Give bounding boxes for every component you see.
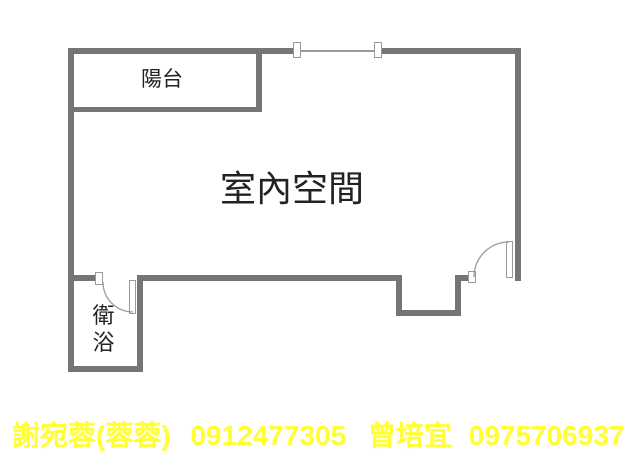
indoor-label: 室內空間 (216, 160, 368, 212)
floorplan-canvas: 陽台 室內空間 衛浴 謝宛蓉(蓉蓉) 0912477305 曾培宜 097570… (0, 0, 640, 461)
agent2-name: 曾培宜 (368, 420, 452, 451)
agent2-phone: 0975706937 (469, 420, 625, 451)
balcony-label: 陽台 (118, 63, 206, 93)
wall-balcony-right (256, 48, 262, 112)
agent1-phone: 0912477305 (190, 420, 346, 451)
agent1-name: 謝宛蓉(蓉蓉) (12, 420, 171, 451)
window-jamb-left (293, 42, 301, 58)
wall-top-left-segment (68, 48, 297, 54)
entry-door-leaf (506, 241, 513, 278)
wall-bottom-left-stub (68, 275, 98, 281)
wall-notch-bottom (396, 310, 461, 316)
wall-balcony-bottom (68, 107, 262, 112)
window-glass-line (297, 50, 377, 52)
wall-right-outer (515, 48, 521, 281)
wall-bottom-middle (137, 275, 399, 281)
wall-notch-right (455, 275, 461, 316)
wall-left-outer (68, 48, 74, 372)
entry-door-jamb (468, 271, 476, 283)
door-arcs-layer (0, 0, 640, 461)
entry-door-arc (474, 242, 509, 277)
window-jamb-right (374, 42, 382, 58)
wall-top-right-segment (381, 48, 521, 54)
wall-bathroom-right (137, 278, 143, 372)
bathroom-door-leaf (129, 280, 136, 314)
bathroom-door-jamb (95, 272, 103, 285)
wall-bathroom-bottom (68, 366, 143, 372)
contact-line: 謝宛蓉(蓉蓉) 0912477305 曾培宜 0975706937 (12, 414, 640, 454)
bathroom-label: 衛浴 (90, 302, 117, 356)
